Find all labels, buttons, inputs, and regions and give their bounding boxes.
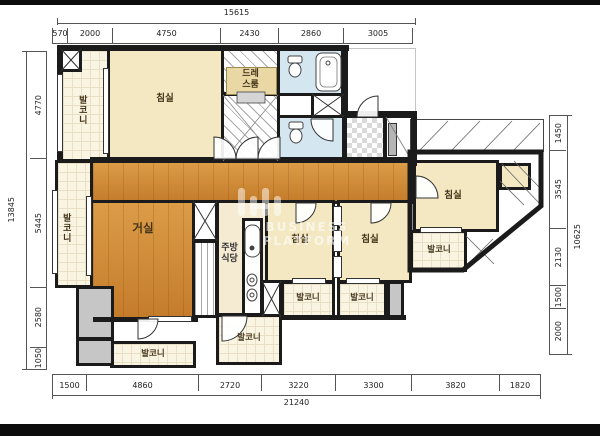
balcony-bottom-left-label: 발코니 xyxy=(128,349,178,359)
dim-right-total: 10625 xyxy=(570,205,584,269)
dim-segment: 3005 xyxy=(343,28,413,44)
dim-segment: 1050 xyxy=(30,347,47,370)
dim-segment: 4770 xyxy=(30,51,47,158)
dim-segment: 3820 xyxy=(411,374,499,391)
tick xyxy=(563,115,572,116)
bedroom-4-label: 침실 xyxy=(435,190,471,201)
dim-right-segments: 1450 3545 2130 1500 2000 xyxy=(549,115,566,355)
dim-segment: 3300 xyxy=(335,374,411,391)
dim-segment: 4860 xyxy=(86,374,198,391)
floorplan-annotations xyxy=(0,0,600,436)
bathroom-door xyxy=(311,119,333,141)
stove-burner-icon xyxy=(247,289,257,301)
balcony-bedroom2-label: 발코니 xyxy=(283,293,333,303)
dim-top-total: 15615 xyxy=(57,8,416,17)
balcony-top-left-label: 발코니 xyxy=(76,82,87,138)
dim-segment: 570 xyxy=(52,28,67,44)
dim-bottom-segments: 1500 4860 2720 3220 3300 3820 1820 xyxy=(52,374,541,391)
tick xyxy=(57,18,58,25)
dim-top-segments: 570 2000 4750 2430 2860 3005 xyxy=(52,28,413,44)
dim-segment: 2720 xyxy=(198,374,261,391)
hall-door xyxy=(258,137,280,159)
dim-segment: 2000 xyxy=(549,308,566,355)
dim-segment: 2000 xyxy=(67,28,112,44)
dim-segment: 1500 xyxy=(549,285,566,308)
living-room-label: 거실 xyxy=(120,222,166,236)
dim-bottom-total: 21240 xyxy=(52,398,541,407)
dim-segment: 2130 xyxy=(549,228,566,285)
tick xyxy=(563,354,572,355)
dim-left-segments: 4770 5445 2580 1050 xyxy=(30,51,47,370)
toilet-icon xyxy=(290,129,302,143)
dim-right-total-line xyxy=(567,115,568,355)
toilet-tank-icon xyxy=(288,56,302,63)
balcony-bedroom4-label: 발코니 xyxy=(413,245,465,255)
double-door-right xyxy=(236,137,258,159)
dim-segment: 2860 xyxy=(278,28,343,44)
letterbox-bottom xyxy=(0,424,600,436)
living-balcony-door xyxy=(138,319,158,339)
dim-segment: 3545 xyxy=(549,150,566,228)
dim-segment: 4750 xyxy=(112,28,220,44)
balcony-left-label: 발코니 xyxy=(60,200,71,256)
dim-segment: 5445 xyxy=(30,158,47,287)
dim-segment: 1450 xyxy=(549,115,566,150)
dim-segment: 2430 xyxy=(220,28,278,44)
balcony-bedroom3-label: 발코니 xyxy=(337,293,387,303)
vanity-counter xyxy=(237,92,265,103)
dim-segment: 1820 xyxy=(499,374,541,391)
toilet-icon xyxy=(289,63,301,77)
double-door-left xyxy=(214,137,236,159)
dim-segment: 2580 xyxy=(30,287,47,347)
letterbox-top xyxy=(0,0,600,5)
dim-segment: 1500 xyxy=(52,374,86,391)
watermark-text: BUSINESS PLATFORM xyxy=(222,220,392,248)
kitchen-label-line2: 식당 xyxy=(221,254,238,264)
dim-left-total: 13845 xyxy=(4,178,18,242)
dressroom-label-line1: 드레 xyxy=(242,69,259,79)
dim-left-total-line xyxy=(26,51,27,370)
balcony-kitchen-label: 발코니 xyxy=(222,333,276,343)
toilet-tank-icon xyxy=(289,122,303,129)
tick xyxy=(415,18,416,25)
dim-segment: 3220 xyxy=(261,374,335,391)
floorplan-screenshot: 15615 570 2000 4750 2430 2860 3005 1500 … xyxy=(0,0,600,436)
dim-bottom-total-line xyxy=(52,395,541,396)
stove-burner-icon xyxy=(247,274,257,286)
dim-top-total-line xyxy=(57,23,416,24)
watermark-logo xyxy=(238,188,281,216)
dressroom-label-line2: 스룸 xyxy=(242,80,259,90)
bedroom-master-label: 침실 xyxy=(145,93,185,104)
entrance-door xyxy=(357,96,378,117)
